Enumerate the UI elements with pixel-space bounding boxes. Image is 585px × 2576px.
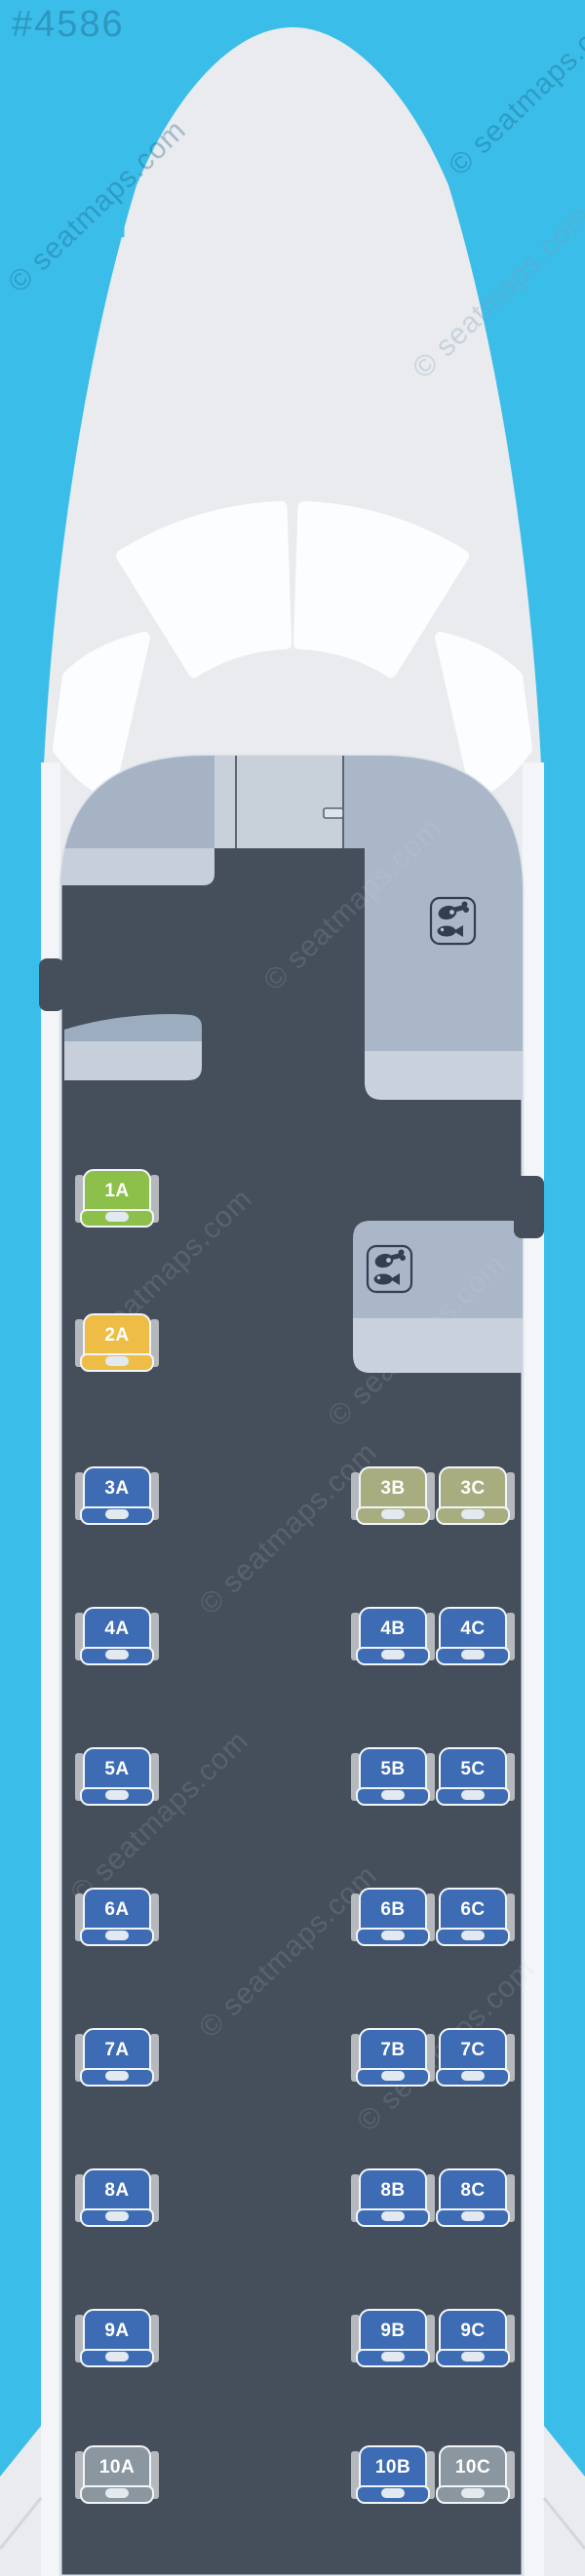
seat-label: 5C bbox=[460, 1760, 485, 1778]
seat-label: 9B bbox=[380, 2322, 405, 2340]
seat-9C[interactable]: 9C bbox=[439, 2309, 507, 2367]
seat-belt-pill bbox=[381, 2071, 405, 2081]
seat-3C[interactable]: 3C bbox=[439, 1466, 507, 1525]
seat-belt-pill bbox=[461, 1509, 485, 1519]
seat-3A[interactable]: 3A bbox=[83, 1466, 151, 1525]
seat-10A[interactable]: 10A bbox=[83, 2445, 151, 2504]
seat-label: 4C bbox=[460, 1620, 485, 1638]
seat-label: 4B bbox=[380, 1620, 405, 1638]
seat-label: 10C bbox=[455, 2458, 490, 2477]
seat-6C[interactable]: 6C bbox=[439, 1888, 507, 1946]
seat-6B[interactable]: 6B bbox=[359, 1888, 427, 1946]
seatmap-canvas: #4586 © seatmaps.com© seatmaps.com© seat… bbox=[0, 0, 585, 2576]
seat-belt-pill bbox=[461, 1650, 485, 1659]
seat-belt-pill bbox=[105, 2211, 129, 2221]
seat-8C[interactable]: 8C bbox=[439, 2168, 507, 2227]
seat-belt-pill bbox=[461, 2352, 485, 2361]
seat-label: 7A bbox=[104, 2041, 129, 2059]
seat-label: 5A bbox=[104, 1760, 129, 1778]
seat-belt-pill bbox=[381, 2352, 405, 2361]
seat-label: 10A bbox=[99, 2458, 135, 2477]
seat-belt-pill bbox=[105, 2352, 129, 2361]
seat-label: 4A bbox=[104, 1620, 129, 1638]
seat-6A[interactable]: 6A bbox=[83, 1888, 151, 1946]
seat-label: 8B bbox=[380, 2181, 405, 2200]
seat-belt-pill bbox=[381, 1790, 405, 1800]
seat-9A[interactable]: 9A bbox=[83, 2309, 151, 2367]
seat-label: 3A bbox=[104, 1479, 129, 1498]
seat-label: 6C bbox=[460, 1900, 485, 1919]
seat-7C[interactable]: 7C bbox=[439, 2028, 507, 2087]
seat-label: 3C bbox=[460, 1479, 485, 1498]
seat-belt-pill bbox=[461, 2211, 485, 2221]
seat-label: 8A bbox=[104, 2181, 129, 2200]
seat-8A[interactable]: 8A bbox=[83, 2168, 151, 2227]
seat-5B[interactable]: 5B bbox=[359, 1747, 427, 1806]
seat-belt-pill bbox=[461, 1790, 485, 1800]
seat-7B[interactable]: 7B bbox=[359, 2028, 427, 2087]
seat-4C[interactable]: 4C bbox=[439, 1607, 507, 1665]
seat-label: 10B bbox=[375, 2458, 410, 2477]
seat-belt-pill bbox=[105, 1790, 129, 1800]
seat-10B[interactable]: 10B bbox=[359, 2445, 427, 2504]
seat-belt-pill bbox=[381, 1650, 405, 1659]
seat-label: 3B bbox=[380, 1479, 405, 1498]
seat-1A[interactable]: 1A bbox=[83, 1169, 151, 1228]
seat-9B[interactable]: 9B bbox=[359, 2309, 427, 2367]
seat-layer: 1A2A3A3B3C4A4B4C5A5B5C6A6B6C7A7B7C8A8B8C… bbox=[0, 0, 585, 2576]
seat-label: 7B bbox=[380, 2041, 405, 2059]
seat-label: 7C bbox=[460, 2041, 485, 2059]
seat-belt-pill bbox=[461, 2071, 485, 2081]
seat-5C[interactable]: 5C bbox=[439, 1747, 507, 1806]
seat-4B[interactable]: 4B bbox=[359, 1607, 427, 1665]
seat-belt-pill bbox=[381, 2488, 405, 2498]
seat-belt-pill bbox=[105, 1509, 129, 1519]
seat-belt-pill bbox=[105, 1212, 129, 1222]
seat-label: 8C bbox=[460, 2181, 485, 2200]
seat-4A[interactable]: 4A bbox=[83, 1607, 151, 1665]
seat-label: 1A bbox=[104, 1182, 129, 1200]
seat-belt-pill bbox=[105, 1650, 129, 1659]
seat-label: 5B bbox=[380, 1760, 405, 1778]
seat-label: 9A bbox=[104, 2322, 129, 2340]
seat-label: 6A bbox=[104, 1900, 129, 1919]
seat-belt-pill bbox=[381, 1931, 405, 1940]
seat-belt-pill bbox=[105, 2488, 129, 2498]
seat-belt-pill bbox=[381, 1509, 405, 1519]
seat-belt-pill bbox=[461, 2488, 485, 2498]
seat-2A[interactable]: 2A bbox=[83, 1313, 151, 1372]
seat-8B[interactable]: 8B bbox=[359, 2168, 427, 2227]
seat-belt-pill bbox=[105, 1931, 129, 1940]
seat-belt-pill bbox=[461, 1931, 485, 1940]
seat-belt-pill bbox=[381, 2211, 405, 2221]
seat-5A[interactable]: 5A bbox=[83, 1747, 151, 1806]
seat-10C[interactable]: 10C bbox=[439, 2445, 507, 2504]
seat-label: 2A bbox=[104, 1326, 129, 1345]
seat-7A[interactable]: 7A bbox=[83, 2028, 151, 2087]
seat-3B[interactable]: 3B bbox=[359, 1466, 427, 1525]
seat-label: 9C bbox=[460, 2322, 485, 2340]
seat-belt-pill bbox=[105, 1356, 129, 1366]
seat-belt-pill bbox=[105, 2071, 129, 2081]
seat-label: 6B bbox=[380, 1900, 405, 1919]
